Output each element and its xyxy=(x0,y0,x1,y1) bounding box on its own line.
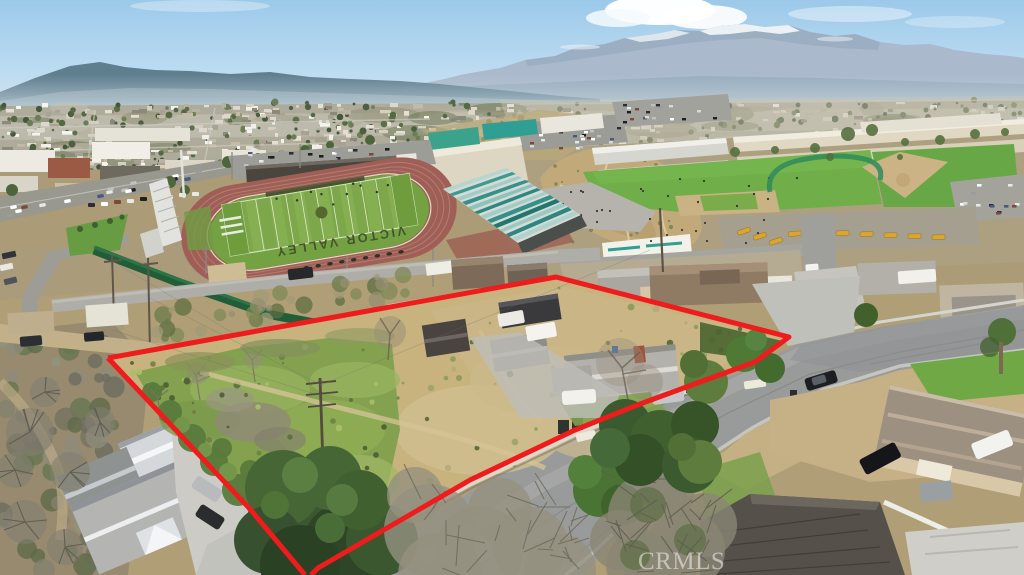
svg-text:CRMLS: CRMLS xyxy=(638,548,725,575)
